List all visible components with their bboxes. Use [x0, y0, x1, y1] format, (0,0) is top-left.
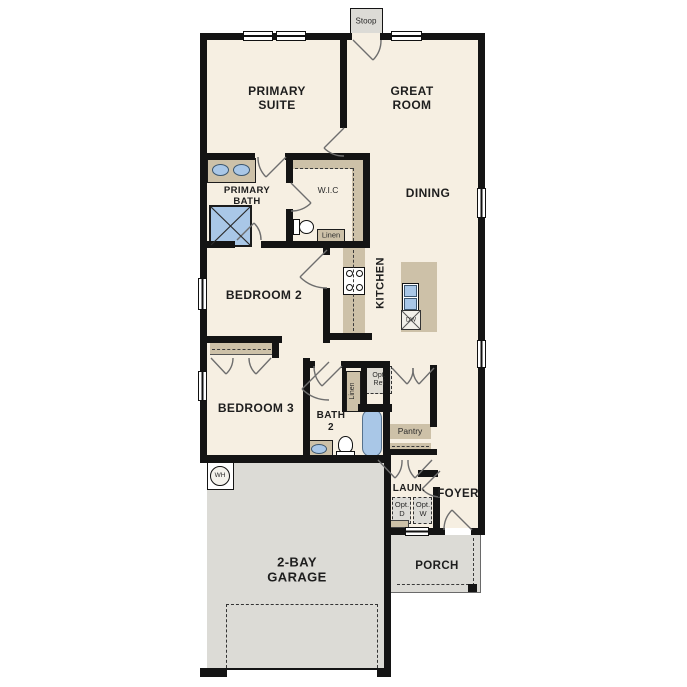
- label-bedroom3: BEDROOM 3: [218, 401, 294, 415]
- porch-dash-v: [473, 538, 474, 586]
- wall-bedroom2-top-right: [261, 241, 367, 248]
- window-dining-1: [477, 188, 486, 218]
- wic-shelf-dash-h: [295, 168, 353, 169]
- wall-bedroom2-right-stub: [323, 248, 330, 255]
- bedroom3-closet-dash: [212, 349, 271, 350]
- wall-bedroom2-top-left: [207, 241, 235, 248]
- wall-bedroom2-right: [323, 288, 330, 343]
- porch-post: [468, 584, 477, 592]
- label-opt-ref: Opt. Ref: [372, 372, 385, 389]
- wall-bedroom2-bottom: [207, 336, 282, 343]
- wall-bath2-top-right: [341, 361, 386, 368]
- island-sink-basin-2: [404, 298, 417, 310]
- stove-burner-3: [346, 284, 353, 291]
- wic-shelf-dash-v: [353, 168, 354, 246]
- wall-garage-right: [384, 455, 391, 677]
- window-laundry: [405, 527, 429, 536]
- wall-garage-bottom-left: [200, 668, 227, 677]
- label-garage: 2-BAY GARAGE: [267, 555, 326, 586]
- wall-porch-top-b: [429, 528, 445, 535]
- wall-bath2-top-left: [310, 361, 315, 368]
- wall-garage-bottom-right: [377, 668, 391, 677]
- wall-foyer-stub: [418, 470, 438, 477]
- wall-bedroom3-right: [303, 358, 310, 462]
- label-primary-suite: PRIMARY SUITE: [248, 84, 306, 112]
- wall-wic-right: [363, 153, 370, 248]
- label-primary-bath: PRIMARY BATH: [224, 185, 270, 207]
- kitchen-counter-dash: [353, 250, 354, 331]
- bath2-sink: [311, 444, 327, 454]
- bathtub: [362, 409, 382, 457]
- label-linen-bath2: Linen: [349, 382, 357, 399]
- floor-plan: Stoop PRIMARY SUITE GREAT ROOM PRIMARY B…: [0, 0, 687, 687]
- pantry-shelf-dash: [392, 446, 429, 447]
- label-kitchen: KITCHEN: [375, 257, 388, 309]
- label-dishwasher: DW: [406, 317, 416, 324]
- vanity-sink-2: [233, 164, 250, 176]
- porch-dash-h: [397, 584, 474, 585]
- label-bedroom2: BEDROOM 2: [226, 288, 302, 302]
- label-water-heater: WH: [215, 472, 226, 480]
- stoop-door-opening: [352, 33, 380, 40]
- garage-door-sill: [227, 668, 377, 670]
- wall-kitchen-bottom: [330, 333, 372, 340]
- island-sink-basin-1: [404, 285, 417, 297]
- wall-porch-top-c: [471, 528, 481, 535]
- label-opt-dryer: Opt. D: [395, 501, 409, 519]
- label-linen-wic: Linen: [322, 232, 340, 241]
- wall-linen2-right: [361, 368, 367, 406]
- window-bedroom3: [198, 371, 207, 401]
- label-bath2: BATH 2: [317, 410, 346, 434]
- wall-laundry-top: [383, 449, 437, 455]
- window-primary-suite-1: [243, 31, 273, 41]
- wall-garage-top: [200, 455, 384, 463]
- window-dining-2: [477, 340, 486, 368]
- wall-suite-bottom-right: [285, 153, 365, 160]
- stove-burner-4: [356, 284, 363, 291]
- wall-bath-wic-divider-a: [286, 158, 293, 183]
- label-great-room: GREAT ROOM: [390, 84, 433, 112]
- wall-suite-bottom-left: [207, 153, 255, 160]
- window-primary-suite-2: [276, 31, 306, 41]
- label-porch: PORCH: [415, 560, 459, 574]
- label-wic: W.I.C: [318, 185, 339, 195]
- garage-door-dashed: [226, 604, 378, 668]
- window-bedroom2: [198, 278, 207, 310]
- wall-right: [478, 33, 485, 535]
- wall-closet-right: [272, 343, 279, 358]
- wall-pantry-right: [430, 365, 437, 427]
- wall-suite-greatroom-divider: [340, 40, 347, 128]
- window-great-room: [391, 31, 422, 41]
- label-pantry: Pantry: [398, 426, 423, 436]
- label-foyer: FOYER: [437, 488, 479, 502]
- vanity-sink-1: [212, 164, 229, 176]
- stove-burner-1: [346, 270, 353, 277]
- label-opt-washer: Opt. W: [416, 501, 430, 519]
- toilet-primary-bowl: [299, 220, 314, 234]
- label-dining: DINING: [406, 186, 450, 200]
- stove-burner-2: [356, 270, 363, 277]
- label-stoop: Stoop: [356, 16, 377, 25]
- wall-linen2-left: [342, 368, 346, 412]
- label-laundry: LAUN.: [393, 483, 426, 495]
